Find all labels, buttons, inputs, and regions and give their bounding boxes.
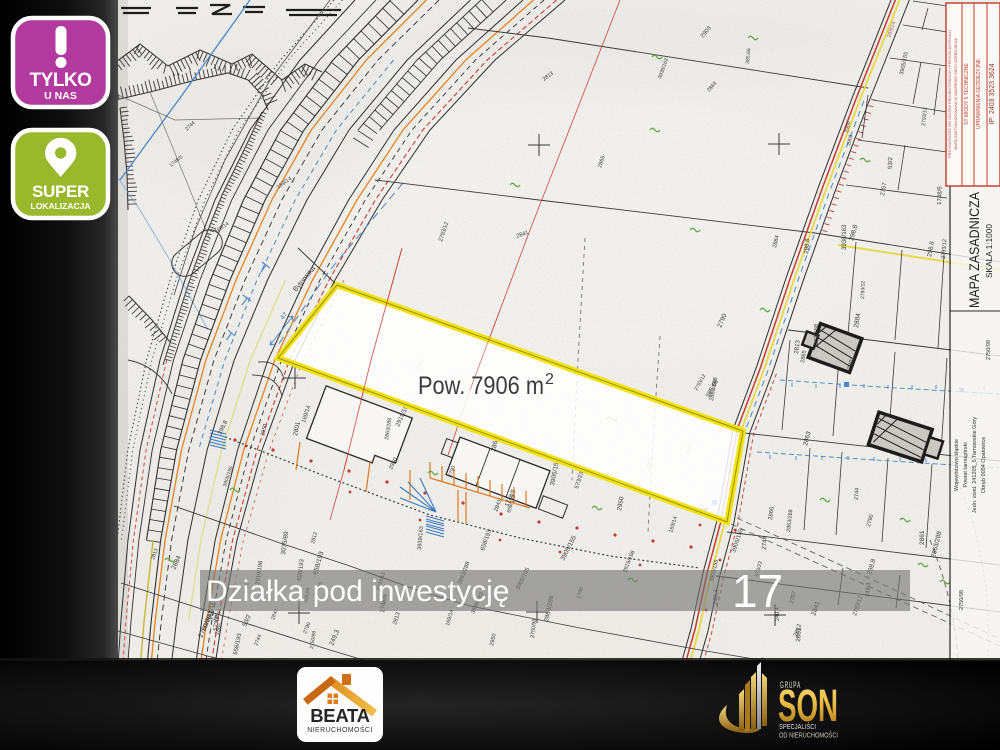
svg-text:2861: 2861 (795, 627, 803, 642)
svg-text:TYLKO: TYLKO (30, 70, 92, 91)
svg-text:Województwo śląskie: Województwo śląskie (954, 439, 960, 491)
svg-text:Pow. 7906 m: Pow. 7906 m (418, 372, 544, 400)
svg-text:2750/98: 2750/98 (959, 590, 965, 610)
svg-text:U NAS: U NAS (44, 90, 77, 102)
svg-text:LOKALIZACJA: LOKALIZACJA (31, 201, 91, 211)
svg-text:2744: 2744 (761, 535, 769, 550)
svg-text:BEATA: BEATA (310, 705, 369, 726)
svg-text:2744: 2744 (854, 488, 860, 500)
svg-text:53/2: 53/2 (887, 156, 894, 169)
svg-text:NIERUCHOMOŚCI: NIERUCHOMOŚCI (307, 725, 372, 734)
svg-text:2863/288: 2863/288 (814, 324, 820, 348)
svg-text:ST MIODY 5 TECHNICZNE: ST MIODY 5 TECHNICZNE (964, 63, 970, 125)
svg-text:OD NIERUCHOMOŚCI: OD NIERUCHOMOŚCI (779, 731, 838, 740)
svg-text:IP: 2403 3523 3624: IP: 2403 3523 3624 (989, 63, 996, 124)
svg-text:298,8: 298,8 (803, 238, 811, 255)
svg-text:Powiat tarnogórski: Powiat tarnogórski (963, 442, 969, 487)
svg-text:PRZYDATNOŚĆ DO CELÓW PROJEKTOW: PRZYDATNOŚĆ DO CELÓW PROJEKTOWYCH I PROC… (947, 30, 952, 158)
svg-text:MAPA ZAKTUALIZOWANA W ZAKRESIE: MAPA ZAKTUALIZOWANA W ZAKRESIE SIECI UZB… (953, 38, 958, 150)
svg-text:Obręb 0054 Opatowice: Obręb 0054 Opatowice (981, 437, 987, 494)
svg-text:1748/5: 1748/5 (936, 186, 944, 205)
svg-text:2793/12: 2793/12 (860, 281, 867, 299)
svg-text:UPRAWNIENIA GEODEZYJNE: UPRAWNIENIA GEODEZYJNE (976, 58, 982, 129)
svg-text:SKALA 1:1000: SKALA 1:1000 (985, 223, 994, 278)
svg-text:2861: 2861 (919, 530, 926, 545)
svg-text:2750/98: 2750/98 (986, 340, 992, 360)
svg-text:Jedn. ewid. 241205_5 Tarnowski: Jedn. ewid. 241205_5 Tarnowskie Góry (972, 417, 978, 513)
svg-text:17: 17 (732, 565, 783, 617)
svg-text:MAPA ZASADNICZA: MAPA ZASADNICZA (966, 191, 982, 308)
svg-text:SUPER: SUPER (32, 182, 89, 201)
svg-text:Działka pod inwestycję: Działka pod inwestycję (206, 575, 509, 608)
svg-text:3938/163: 3938/163 (841, 224, 848, 250)
svg-text:2: 2 (545, 371, 554, 388)
